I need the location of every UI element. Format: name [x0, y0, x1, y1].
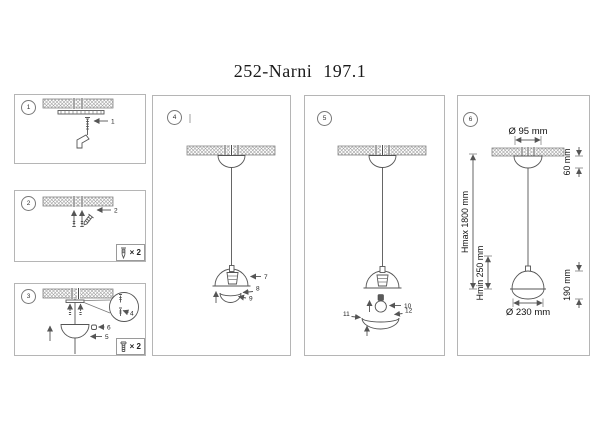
part-label-12: 12: [405, 308, 413, 315]
part-callout-5: 5: [91, 334, 110, 341]
part-callout-1: 1: [94, 119, 115, 126]
step-number-badge: 6: [463, 112, 478, 127]
part-label-7: 7: [264, 274, 268, 281]
canopy-drawing: [369, 156, 396, 168]
pendant-lamp-drawing: [510, 266, 546, 299]
quantity-box: × 2: [116, 338, 145, 355]
quantity-label: × 2: [130, 342, 141, 351]
screws-inserting-drawing: [72, 211, 83, 227]
part-label-2: 2: [114, 208, 118, 215]
quantity-label: × 2: [130, 248, 141, 257]
step-4-drawing: 7 8 9: [153, 96, 290, 355]
step-number-badge: 2: [21, 196, 36, 211]
diffuser-drawing: [362, 318, 399, 329]
part-callout-2: 2: [97, 208, 118, 215]
panel-step-1: 1 1: [14, 94, 146, 164]
step-number-badge: 1: [21, 100, 36, 115]
height-min-label: Hmin 250 mm: [475, 246, 485, 301]
cable-stopper-drawing: [92, 325, 97, 330]
instruction-sheet: 252-Narni 197.1 1 1: [0, 0, 600, 424]
quantity-box: × 2: [116, 244, 145, 261]
part-label-5: 5: [105, 334, 109, 341]
wood-screw-drawing: [85, 118, 90, 136]
ceiling-drawing: [492, 147, 564, 157]
canopy-drawing: [61, 325, 89, 339]
ceiling-drawing: [43, 196, 113, 207]
magnifier-leader-lines: [84, 300, 111, 313]
part-label-11: 11: [343, 311, 350, 318]
part-label-9: 9: [249, 296, 253, 303]
part-callout-6: 6: [99, 325, 112, 332]
dimension-shade-height: 190 mm: [562, 262, 583, 308]
step-5-drawing: 10 11 12: [305, 96, 444, 355]
panel-step-4: 4 7: [152, 95, 291, 356]
canopy-height-label: 60 mm: [562, 149, 572, 176]
step-number-badge: 5: [317, 111, 332, 126]
canopy-diameter-label: Ø 95 mm: [508, 126, 547, 137]
dimension-canopy-height: 60 mm: [562, 147, 583, 177]
bulb-drawing: [375, 295, 386, 313]
step-number-badge: 3: [21, 289, 36, 304]
ceiling-drawing: [338, 145, 426, 156]
part-callout-9: 9: [239, 296, 254, 303]
machine-screw-icon: [119, 341, 128, 353]
diffuser-drawing: [220, 293, 241, 303]
ceiling-drawing: [187, 145, 275, 156]
page-title: 252-Narni 197.1: [0, 61, 600, 82]
height-max-label: Hmax 1800 mm: [460, 191, 470, 253]
part-label-1: 1: [111, 119, 115, 126]
dimensions-drawing: Ø 95 mm Hmax: [458, 96, 589, 355]
canopy-drawing: [514, 156, 542, 168]
mounting-plate-drawing: [58, 111, 104, 115]
panel-step-6: 6 Ø 95 mm: [457, 95, 590, 356]
panel-step-3: 3 4: [14, 283, 146, 356]
shade-diameter-label: Ø 230 mm: [506, 307, 550, 318]
detail-magnifier-circle: 4: [110, 293, 139, 322]
shade-drawing: [364, 267, 402, 289]
wood-screw-icon: [119, 247, 128, 259]
step-number-badge: 4: [167, 110, 182, 125]
ceiling-drawing: [43, 288, 113, 299]
ceiling-drawing: [43, 98, 113, 109]
part-callout-11: 11: [343, 311, 361, 318]
dimension-height-min: Hmin 250 mm: [475, 246, 492, 301]
wall-plug-icon: [82, 214, 94, 227]
dimension-shade-diameter: Ø 230 mm: [506, 299, 550, 319]
dimension-canopy-diameter: Ø 95 mm: [508, 126, 547, 145]
part-callout-7: 7: [251, 274, 269, 281]
panel-step-5: 5 10: [304, 95, 445, 356]
part-label-6: 6: [107, 325, 111, 332]
bracket-piece-drawing: [77, 135, 89, 148]
part-label-8: 8: [256, 286, 260, 293]
panel-step-2: 2 2 × 2: [14, 190, 146, 262]
shade-drawing: [213, 266, 251, 287]
shade-height-label: 190 mm: [562, 269, 572, 301]
part-label-4: 4: [130, 311, 134, 318]
part-callout-8: 8: [243, 286, 260, 293]
canopy-drawing: [218, 156, 245, 168]
